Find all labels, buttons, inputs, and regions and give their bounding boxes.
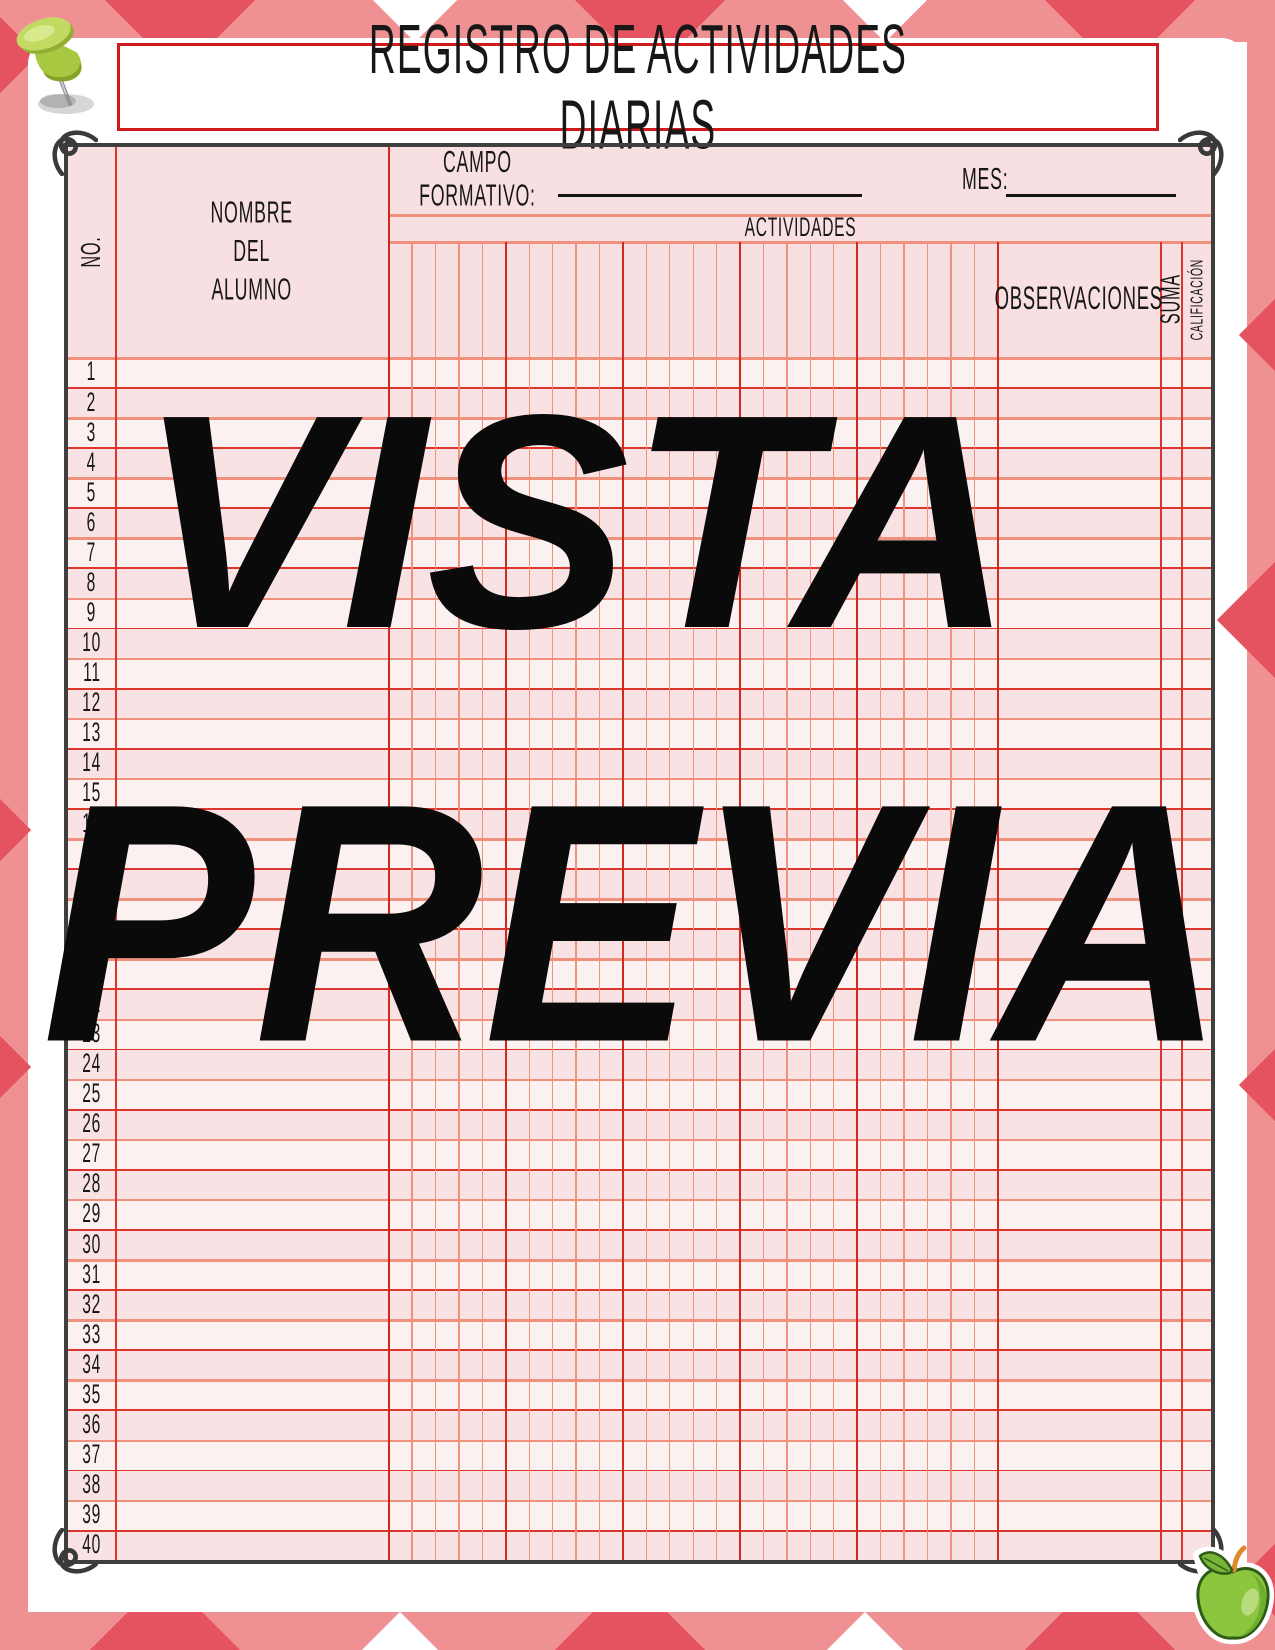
table-row [68, 1169, 1213, 1199]
row-number: 39 [68, 1500, 115, 1530]
row-number: 3 [68, 417, 115, 447]
row-number-text: 32 [82, 1289, 101, 1319]
row-number: 7 [68, 537, 115, 567]
grid-hline [68, 1289, 1213, 1291]
table-row [68, 1139, 1213, 1169]
table-row [68, 1440, 1213, 1470]
table-row [68, 1409, 1213, 1439]
row-number: 10 [68, 628, 115, 658]
grid-hline [68, 1349, 1213, 1351]
table-row [68, 1349, 1213, 1379]
grid-hline [68, 718, 1213, 721]
grid-hline [68, 1530, 1213, 1532]
table-row [68, 1500, 1213, 1530]
column-header-student-name: NOMBRE DEL ALUMNO [115, 147, 388, 357]
corner-flourish-bottom-left [52, 1528, 98, 1574]
row-number: 4 [68, 447, 115, 477]
table-row [68, 1470, 1213, 1500]
row-number-text: 30 [82, 1229, 101, 1259]
row-number-text: 6 [87, 508, 96, 538]
grid-hline [68, 1199, 1213, 1202]
row-number: 1 [68, 357, 115, 387]
row-number-text: 28 [82, 1169, 101, 1199]
row-number-text: 2 [87, 387, 96, 417]
row-number: 27 [68, 1139, 115, 1169]
column-header-no: NO. [68, 147, 115, 357]
corner-flourish-top-right [1178, 130, 1224, 176]
row-number-text: 11 [83, 658, 101, 688]
table-row [68, 1289, 1213, 1319]
row-number: 32 [68, 1289, 115, 1319]
row-number: 33 [68, 1319, 115, 1349]
row-number-text: 26 [82, 1109, 101, 1139]
column-header-sum: SUMA [1160, 242, 1181, 357]
row-number-text: 37 [82, 1440, 101, 1470]
grid-hline [68, 1500, 1213, 1503]
row-number: 29 [68, 1199, 115, 1229]
pushpin-icon [8, 8, 108, 123]
row-number-text: 9 [87, 598, 96, 628]
campo-formativo-blank [558, 194, 862, 197]
grid-hline [68, 1319, 1213, 1322]
row-number: 35 [68, 1379, 115, 1409]
title-box: REGISTRO DE ACTIVIDADES DIARIAS [117, 43, 1159, 131]
row-number: 28 [68, 1169, 115, 1199]
table-row [68, 688, 1213, 718]
row-number: 36 [68, 1409, 115, 1439]
table-row [68, 1379, 1213, 1409]
row-number: 31 [68, 1259, 115, 1289]
row-number-text: 35 [82, 1380, 101, 1410]
row-number-text: 12 [82, 688, 101, 718]
table-row [68, 1229, 1213, 1259]
column-header-observations: OBSERVACIONES [997, 242, 1160, 357]
apple-icon [1188, 1540, 1275, 1650]
grid-hline [68, 1229, 1213, 1231]
row-number: 2 [68, 387, 115, 417]
row-number: 6 [68, 507, 115, 537]
table-row [68, 1259, 1213, 1289]
grid-hline [68, 1139, 1213, 1142]
grid-hline [68, 1259, 1213, 1262]
row-number-text: 33 [82, 1319, 101, 1349]
row-number-text: 29 [82, 1199, 101, 1229]
table-row [68, 1199, 1213, 1229]
row-number-text: 31 [82, 1259, 101, 1289]
watermark-line-1: VISTA [138, 400, 1014, 644]
grid-hline [68, 1440, 1213, 1443]
grid-hline [68, 1169, 1213, 1171]
row-number-text: 8 [87, 568, 96, 598]
row-number-text: 27 [82, 1139, 101, 1169]
row-number-text: 1 [87, 357, 96, 387]
column-header-activities: ACTIVIDADES [388, 214, 1213, 242]
table-row [68, 1319, 1213, 1349]
mes-blank [1006, 194, 1176, 197]
row-number-text: 39 [82, 1500, 101, 1530]
row-number: 11 [68, 658, 115, 688]
row-number-text: 3 [87, 417, 96, 447]
row-number-text: 36 [82, 1410, 101, 1440]
column-header-grade: CALIFICACIÓN [1181, 242, 1213, 357]
row-number: 8 [68, 567, 115, 597]
row-number: 38 [68, 1470, 115, 1500]
row-number-text: 5 [87, 478, 96, 508]
page-title: REGISTRO DE ACTIVIDADES DIARIAS [338, 11, 939, 163]
row-number: 30 [68, 1229, 115, 1259]
grid-hline [68, 1409, 1213, 1411]
row-number-text: 10 [82, 628, 101, 658]
row-number-text: 34 [82, 1350, 101, 1380]
mes-label: MES: [962, 152, 1042, 208]
row-number: 34 [68, 1349, 115, 1379]
grid-hline [68, 1470, 1213, 1472]
table-row [68, 1530, 1213, 1560]
worksheet-page: REGISTRO DE ACTIVIDADES DIARIAS 12345678… [0, 0, 1275, 1650]
row-number-text: 4 [87, 447, 96, 477]
row-number: 12 [68, 688, 115, 718]
row-number-text: 38 [82, 1470, 101, 1500]
corner-flourish-top-left [52, 130, 98, 176]
row-number: 37 [68, 1440, 115, 1470]
row-number: 5 [68, 477, 115, 507]
watermark-line-2: PREVIA [42, 788, 1226, 1060]
grid-hline [68, 1379, 1213, 1382]
row-number-text: 7 [87, 538, 96, 568]
row-number: 9 [68, 598, 115, 628]
